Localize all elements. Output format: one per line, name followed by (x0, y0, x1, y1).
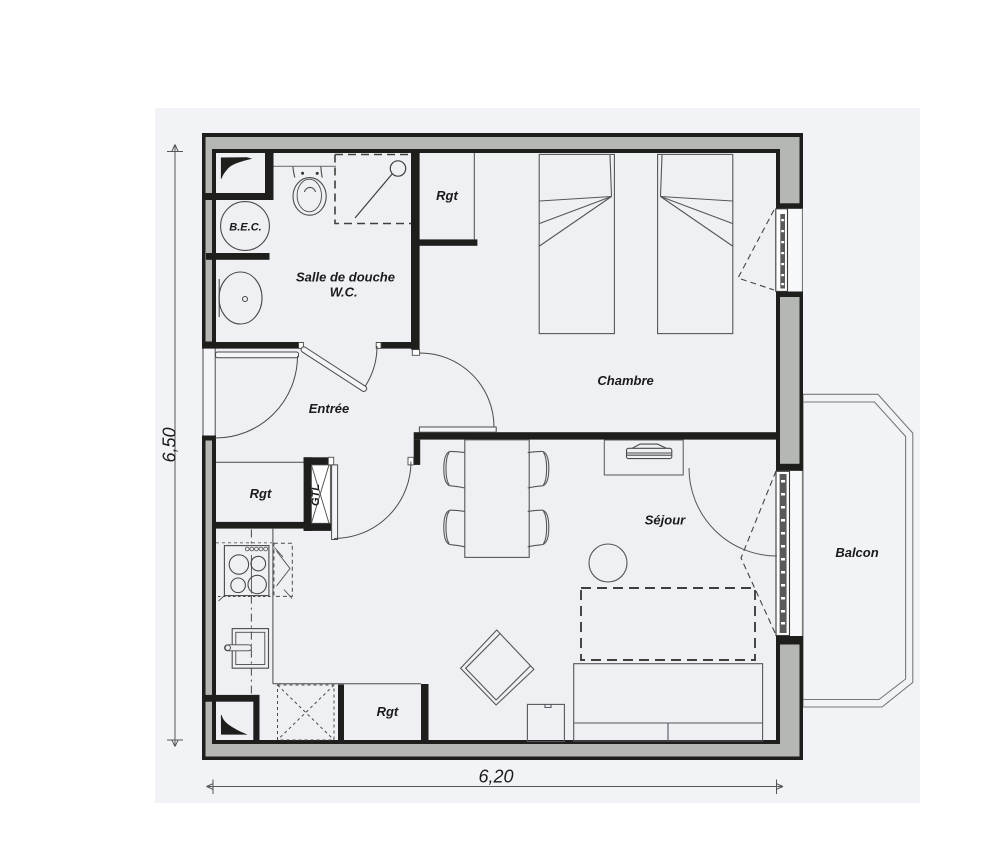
svg-text:B.E.C.: B.E.C. (229, 222, 261, 234)
svg-text:Chambre: Chambre (597, 373, 653, 388)
svg-text:6,20: 6,20 (478, 767, 513, 787)
svg-text:Rgt: Rgt (377, 704, 399, 719)
svg-text:GTL: GTL (310, 484, 322, 506)
svg-text:Séjour: Séjour (645, 513, 686, 528)
svg-text:Rgt: Rgt (436, 188, 458, 203)
svg-text:Salle de douche: Salle de douche (296, 270, 395, 285)
svg-text:6,50: 6,50 (159, 427, 179, 462)
svg-text:Entrée: Entrée (309, 401, 349, 416)
svg-text:Balcon: Balcon (835, 545, 878, 560)
svg-text:W.C.: W.C. (330, 285, 358, 300)
svg-text:Rgt: Rgt (250, 486, 272, 501)
